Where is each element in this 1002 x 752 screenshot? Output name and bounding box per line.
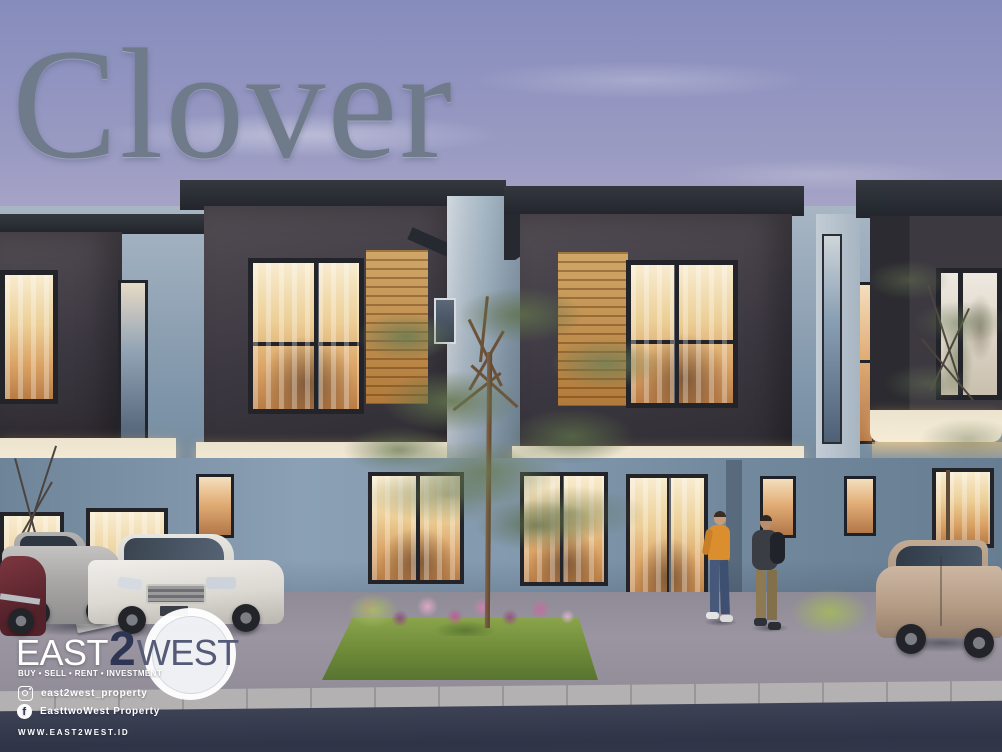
tree-canopy-lower: [360, 420, 650, 570]
cloud-streak: [420, 50, 860, 110]
beige-car-wheel-rear: [964, 628, 994, 658]
person-leg: [710, 560, 719, 614]
beige-car-doorline: [940, 556, 942, 626]
sedan-grille: [146, 584, 206, 604]
logo-west-text: WEST: [137, 632, 239, 674]
flyer-canvas: Clover EAST 2 WEST BUY • SELL • RENT • I…: [0, 0, 1002, 752]
logo-east-text: EAST: [16, 632, 108, 674]
instagram-handle: east2west_property: [41, 688, 148, 699]
instagram-row: east2west_property: [18, 686, 148, 701]
person-hair: [714, 511, 726, 517]
person-shoe: [720, 615, 733, 622]
person-backpack: [746, 514, 788, 634]
facebook-icon: f: [17, 704, 32, 719]
person-shoe: [706, 612, 719, 619]
left-tall-strip-window: [118, 280, 148, 445]
instagram-icon: [18, 686, 33, 701]
center-right-roof: [504, 186, 804, 216]
page-title: Clover: [12, 26, 454, 184]
person-leg: [756, 570, 766, 620]
facebook-row: f EasttwoWest Property: [17, 704, 160, 719]
right-tree-canopy: [868, 238, 1002, 518]
brand-tagline: BUY • SELL • RENT • INVESTMENT: [18, 669, 162, 678]
far-right-roof: [856, 180, 1002, 218]
person-leg: [719, 560, 730, 614]
person-shoe: [768, 622, 781, 630]
person-orange-sweater: [704, 512, 736, 624]
website-url: WWW.EAST2WEST.ID: [18, 728, 129, 737]
sedan-headlight-right: [206, 577, 236, 589]
facebook-handle: EasttwoWest Property: [40, 706, 160, 717]
person-hair: [760, 515, 772, 521]
far-left-upper-window: [0, 270, 58, 404]
grass-tuft-left: [338, 584, 408, 632]
beige-car-body: [876, 566, 1002, 638]
backpack: [770, 532, 785, 564]
right-cool-strip-window: [822, 234, 842, 444]
person-shoe: [754, 618, 767, 626]
person-leg: [767, 570, 777, 620]
beige-car-wheel-front: [896, 624, 926, 654]
sheer-curtain: [5, 275, 53, 399]
gf-small-window-left: [196, 474, 234, 538]
